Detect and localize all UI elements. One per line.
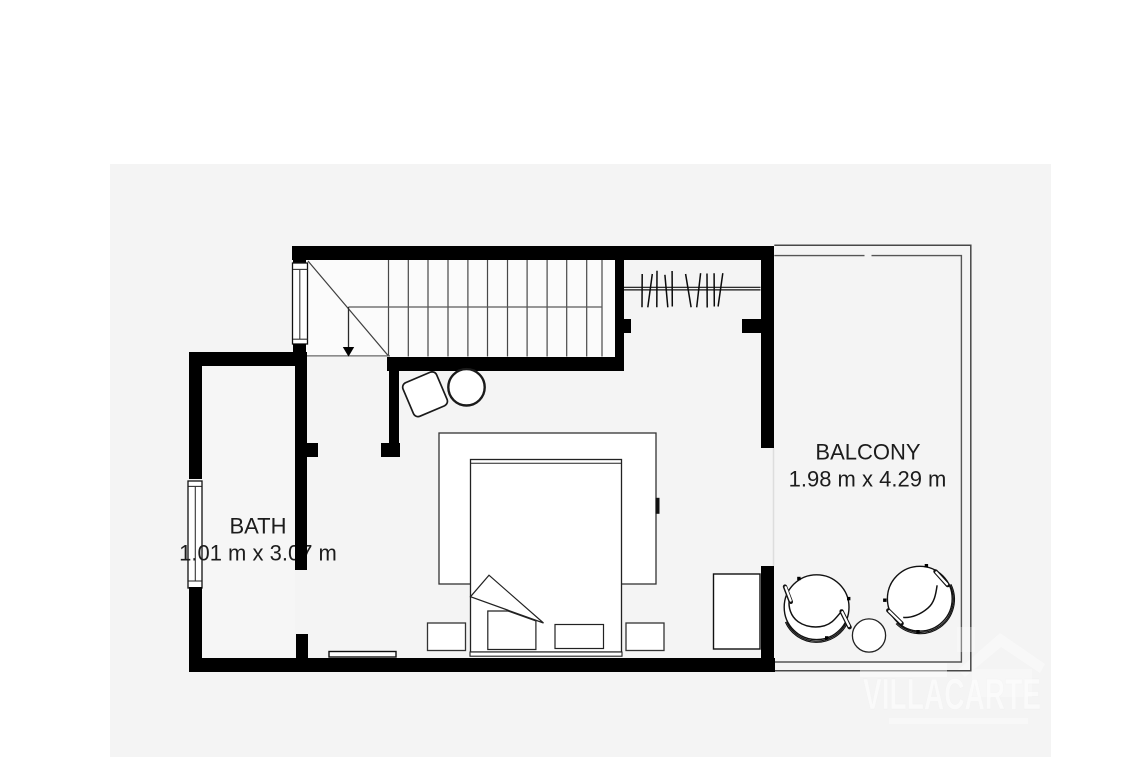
svg-text:1.01 m x 3.07 m: 1.01 m x 3.07 m xyxy=(179,541,337,566)
svg-text:1.98 m x 4.29 m: 1.98 m x 4.29 m xyxy=(789,467,947,492)
svg-text:BALCONY: BALCONY xyxy=(815,440,920,465)
svg-text:BATH: BATH xyxy=(229,514,286,539)
svg-text:VILLACARTE: VILLACARTE xyxy=(863,670,1041,719)
